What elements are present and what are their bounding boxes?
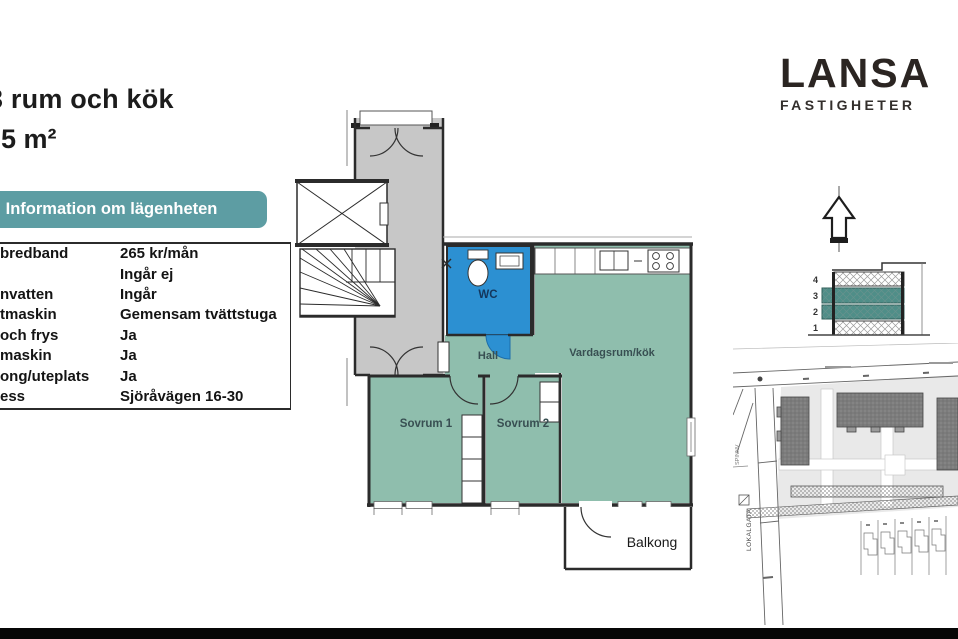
page-title: 3 rum och kök <box>0 84 174 115</box>
info-label: ess <box>0 387 120 407</box>
corridor-top-structure <box>360 111 432 125</box>
info-value: Ja <box>120 326 290 346</box>
info-value: Ja <box>120 367 290 387</box>
floor-4 <box>834 272 904 286</box>
info-label: bredband <box>0 244 120 264</box>
entry-door-niche <box>438 342 449 372</box>
info-value: Ja <box>120 346 290 366</box>
floor-label-2: 2 <box>813 307 818 317</box>
north-arrow-icon <box>818 186 860 252</box>
info-label: och frys <box>0 326 120 346</box>
hall-label: Hall <box>478 350 498 362</box>
roof-line <box>832 263 926 270</box>
elevator-shaft <box>295 179 389 247</box>
floor-label-4: 4 <box>813 275 818 285</box>
livingroom-label: Vardagsrum/kök <box>569 347 655 359</box>
building-section-diagram: 4 3 2 1 <box>808 252 930 340</box>
floorplan-drawing: WC <box>290 110 710 575</box>
info-label: tmaskin <box>0 305 120 325</box>
floor-1 <box>834 321 904 335</box>
brochure-page: 3 rum och kök 65 m² Information om lägen… <box>0 0 958 639</box>
toilet-icon <box>468 250 488 286</box>
info-value: Sjöråvägen 16-30 <box>120 387 290 407</box>
info-label: maskin <box>0 346 120 366</box>
site-plan-map: LOKALGATA SPINNV <box>733 343 958 625</box>
info-value: Gemensam tvättstuga <box>120 305 290 325</box>
stove-icon <box>648 250 679 272</box>
wc-label: WC <box>478 289 497 301</box>
terraced-houses <box>861 516 946 575</box>
brand-logo: LANSA FASTIGHETER <box>780 52 940 113</box>
boundary-line <box>733 466 748 467</box>
south-building-strip <box>791 486 943 497</box>
street-label-spinnv: SPINNV <box>735 444 741 465</box>
balcony-label: Balkong <box>627 534 678 550</box>
wardrobe <box>540 382 559 422</box>
bedroom2-label: Sovrum 2 <box>497 418 549 430</box>
sink-icon <box>496 253 523 269</box>
info-value: Ingår <box>120 285 290 305</box>
wardrobe <box>462 415 482 503</box>
apartment-area: 65 m² <box>0 124 57 155</box>
floor-label-1: 1 <box>813 323 818 333</box>
info-header: Information om lägenheten <box>0 191 267 228</box>
road-label-marks <box>825 366 851 368</box>
section-post <box>832 272 835 335</box>
bedroom1-label: Sovrum 1 <box>400 418 453 430</box>
info-value: Ingår ej <box>120 265 290 285</box>
brand-name: LANSA <box>780 52 940 94</box>
staircase <box>300 249 395 317</box>
brand-subtitle: FASTIGHETER <box>780 97 940 113</box>
road-label-marks <box>929 362 953 364</box>
floor-label-3: 3 <box>813 291 818 301</box>
info-value: 265 kr/mån <box>120 244 290 264</box>
info-label: nvatten <box>0 285 120 305</box>
info-label: ong/uteplats <box>0 367 120 387</box>
section-post <box>901 272 904 335</box>
info-table: bredband 265 kr/mån Ingår ej nvatten Ing… <box>0 242 291 410</box>
bottom-bar <box>0 628 958 639</box>
kitchen-counter <box>535 248 690 274</box>
